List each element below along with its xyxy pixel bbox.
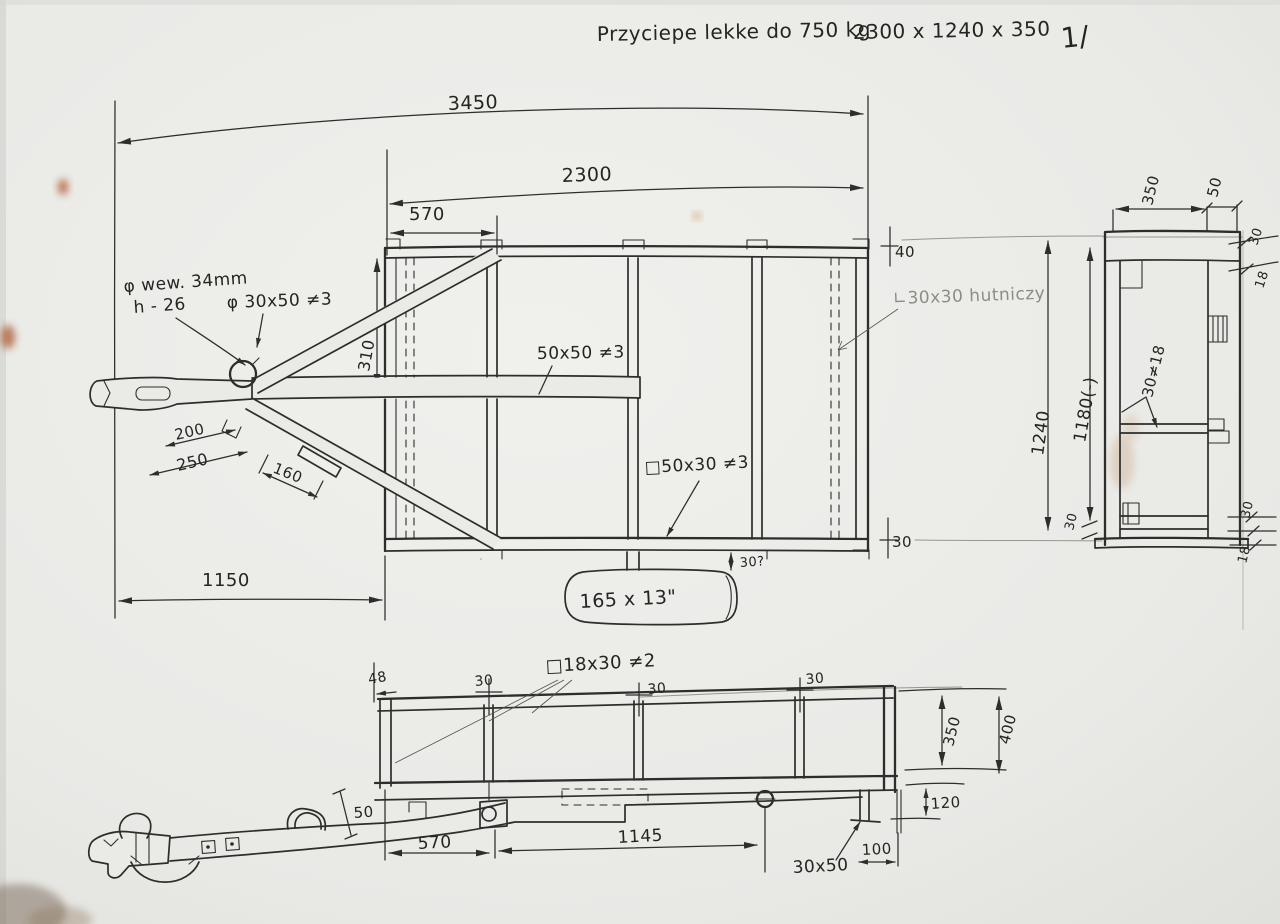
- dim-post-48: 48: [367, 669, 388, 688]
- scanned-drawing-page: Przyciepe lekke do 750 kg 2300 x 1240 x …: [0, 0, 1280, 924]
- dim-post-30-a: 30: [474, 672, 494, 690]
- paper-smudge: [1110, 435, 1134, 489]
- dim-tyre-gap: 30?: [739, 554, 765, 571]
- label-rear-bracket-profile: 30x50: [792, 855, 849, 878]
- dim-rear-rail-height: 30: [892, 533, 912, 551]
- label-center-beam-profile: 50x50 ≠3: [537, 342, 625, 364]
- dim-post-30-c: 30: [805, 670, 825, 688]
- dim-bed-length: 2300: [561, 163, 612, 187]
- dim-post-30-b: 30: [647, 680, 667, 698]
- dim-side-570: 570: [417, 832, 452, 854]
- dim-drawbar-height-50: 50: [353, 803, 374, 822]
- dim-front-offset: 570: [409, 204, 445, 225]
- page-number: 1/: [1059, 19, 1091, 55]
- dim-side-120: 120: [930, 793, 961, 813]
- rust-stain: [58, 179, 68, 195]
- dim-side-1145: 1145: [617, 826, 663, 848]
- rust-stain: [1, 325, 15, 349]
- dim-side-100: 100: [861, 839, 892, 859]
- label-drawbar-profile: φ 30x50 ≠3: [226, 289, 332, 313]
- dim-drawbar-length: 1150: [202, 570, 250, 591]
- trailer-sketch: Przyciepe lekke do 750 kg 2300 x 1240 x …: [0, 0, 1280, 924]
- ink-speck: [694, 213, 700, 219]
- drawing-title: Przyciepe lekke do 750 kg: [597, 17, 871, 46]
- label-hub-height: h - 26: [133, 294, 187, 318]
- paper-smudge: [1123, 414, 1139, 442]
- dim-overall-length: 3450: [447, 91, 498, 115]
- dim-front-rail-height: 40: [895, 243, 915, 261]
- overall-dimensions-note: 2300 x 1240 x 350: [853, 17, 1051, 44]
